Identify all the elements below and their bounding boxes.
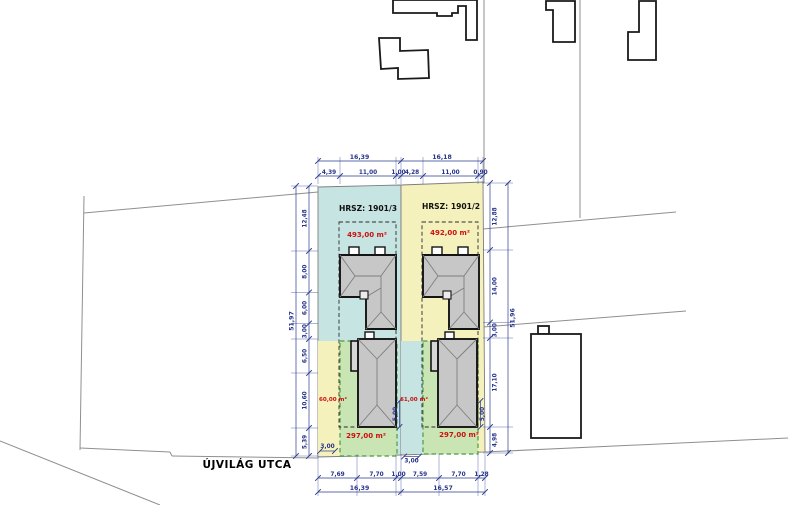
roof-notch (360, 291, 368, 299)
dimension-label: 14,00 (492, 277, 498, 295)
dimension-label: 51,97 (289, 311, 296, 331)
site-plan: 16,3916,184,3911,001,004,2811,000,907,69… (0, 0, 800, 505)
neighbor-building (546, 1, 575, 42)
chimney (445, 332, 454, 339)
inner-dim-left: 3,00 (320, 444, 334, 450)
dimension-label: 7,70 (369, 472, 383, 478)
dimension-label: 16,57 (433, 485, 453, 492)
street-edge (80, 448, 170, 452)
dimension-label: 12,48 (303, 209, 309, 227)
dimension-label: 5,00 (393, 407, 399, 421)
dimension-label: 16,39 (350, 154, 370, 161)
dimension-label: 16,18 (432, 154, 452, 161)
inner-dim-middle: 3,00 (404, 459, 418, 465)
dimension-label: 3,00 (303, 324, 309, 338)
roof-notch (443, 291, 451, 299)
dimension-label: 4,39 (322, 170, 336, 176)
dimension-label: 12,88 (492, 207, 498, 225)
dimension-label: 16,39 (350, 485, 370, 492)
dimension-label: 1,28 (474, 472, 488, 478)
dimension-label: 51,96 (509, 308, 516, 328)
garden-left-area-label: 297,00 m² (346, 432, 386, 440)
dimension-label: 7,70 (451, 472, 465, 478)
lot-right-parcel-label: HRSZ: 1901/2 (422, 202, 480, 211)
site-plan-page: 16,3916,184,3911,001,004,2811,000,907,69… (0, 0, 800, 505)
dimension-label: 3,00 (492, 323, 498, 337)
street-edge (485, 438, 788, 452)
garden-right-area-label: 297,00 m² (439, 431, 479, 439)
dimension-label: 10,60 (303, 391, 309, 409)
dimension-label: 4,98 (492, 433, 498, 447)
dimension-label: 7,59 (413, 472, 427, 478)
house-lower-left (351, 332, 396, 427)
chimney (458, 247, 468, 255)
chimney (365, 332, 374, 339)
dimension-label: 0,90 (473, 170, 487, 176)
house-lower-right (431, 332, 477, 427)
dimension-label: 6,50 (303, 349, 309, 363)
parcel-line (84, 192, 318, 213)
street-name-label: ÚJVILÁG UTCA (202, 458, 291, 471)
street-edge (170, 452, 172, 456)
dimension-label: 11,00 (359, 170, 377, 176)
paved-right-area-label: 61,00 m² (400, 396, 428, 403)
neighbor-building-chimney (538, 326, 549, 334)
dimension-label: 5,00 (480, 407, 486, 421)
dimension-label: 8,00 (303, 265, 309, 279)
dimension-label: 7,69 (330, 472, 344, 478)
neighbor-building (531, 334, 581, 438)
roof-outline (438, 339, 477, 427)
dimension-label: 4,28 (405, 170, 419, 176)
neighbor-building (379, 38, 429, 79)
dimension-label: 5,39 (303, 435, 309, 449)
dimension-label: 1,00 (391, 170, 405, 176)
paved-left-area-label: 60,00 m² (319, 396, 347, 403)
neighbor-building (393, 0, 477, 40)
parcel-line (80, 196, 84, 450)
chimney (349, 247, 359, 255)
dimension-label: 6,00 (303, 301, 309, 315)
dimension-label: 17,10 (492, 373, 498, 391)
neighbor-building (628, 1, 656, 60)
dimension-label: 11,00 (441, 170, 459, 176)
chimney (375, 247, 385, 255)
lot-left-parcel-label: HRSZ: 1901/3 (339, 204, 397, 213)
lot-right-area-label: 492,00 m² (430, 229, 470, 237)
dimension-label: 1,00 (391, 472, 405, 478)
chimney (432, 247, 442, 255)
lot-left-area-label: 493,00 m² (347, 231, 387, 239)
